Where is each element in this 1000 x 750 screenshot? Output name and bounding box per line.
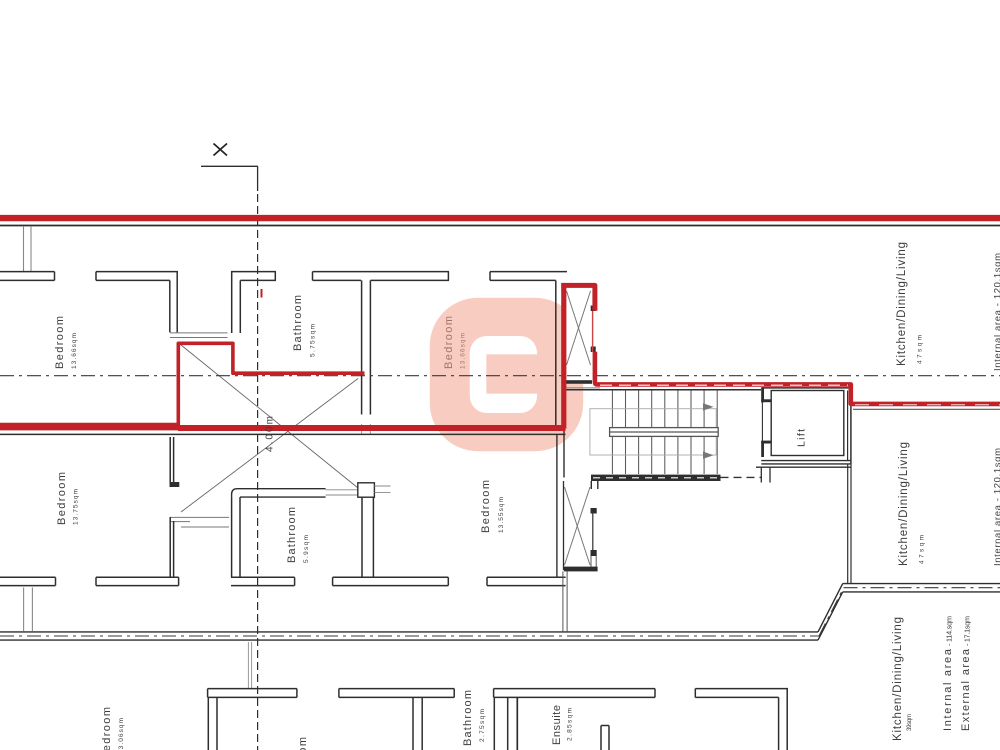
svg-text:13.06sqm: 13.06sqm	[118, 718, 125, 750]
svg-text:Internal area - 120.1sqm: Internal area - 120.1sqm	[993, 448, 1000, 566]
svg-text:Kitchen/Dining/Living: Kitchen/Dining/Living	[898, 442, 910, 566]
svg-text:5.9sqm: 5.9sqm	[303, 535, 310, 563]
svg-text:Bathroom: Bathroom	[286, 507, 298, 563]
svg-text:Bathroom: Bathroom	[462, 690, 474, 746]
svg-text:Bedroom: Bedroom	[297, 737, 309, 750]
svg-text:- 17.1sqm: - 17.1sqm	[963, 616, 972, 646]
svg-text:13.75sqm: 13.75sqm	[73, 489, 80, 525]
svg-text:Bedroom: Bedroom	[54, 316, 66, 369]
svg-text:13.66sqm: 13.66sqm	[71, 333, 78, 369]
svg-text:2.75sqm: 2.75sqm	[479, 709, 486, 742]
svg-text:13.55sqm: 13.55sqm	[498, 497, 505, 533]
svg-text:Internal area: Internal area	[942, 648, 954, 731]
svg-text:Ensuite: Ensuite	[551, 705, 563, 745]
svg-text:5.75sqm: 5.75sqm	[310, 324, 317, 357]
svg-text:- 114.sqm: - 114.sqm	[945, 616, 954, 646]
svg-text:Bedroom: Bedroom	[480, 480, 492, 533]
svg-text:Bedroom: Bedroom	[101, 707, 113, 750]
svg-text:39sqm: 39sqm	[907, 714, 913, 731]
svg-text:Lift: Lift	[796, 429, 808, 447]
svg-text:Kitchen/Dining/Living: Kitchen/Dining/Living	[896, 242, 908, 366]
svg-text:Kitchen/Dining/Living: Kitchen/Dining/Living	[892, 617, 904, 741]
svg-text:Internal area - 120.1sqm: Internal area - 120.1sqm	[993, 253, 1000, 371]
svg-text:Bathroom: Bathroom	[292, 295, 304, 351]
svg-text:Bedroom: Bedroom	[56, 472, 68, 525]
svg-text:External area: External area	[960, 648, 972, 731]
svg-text:2.85sqm: 2.85sqm	[567, 708, 574, 741]
